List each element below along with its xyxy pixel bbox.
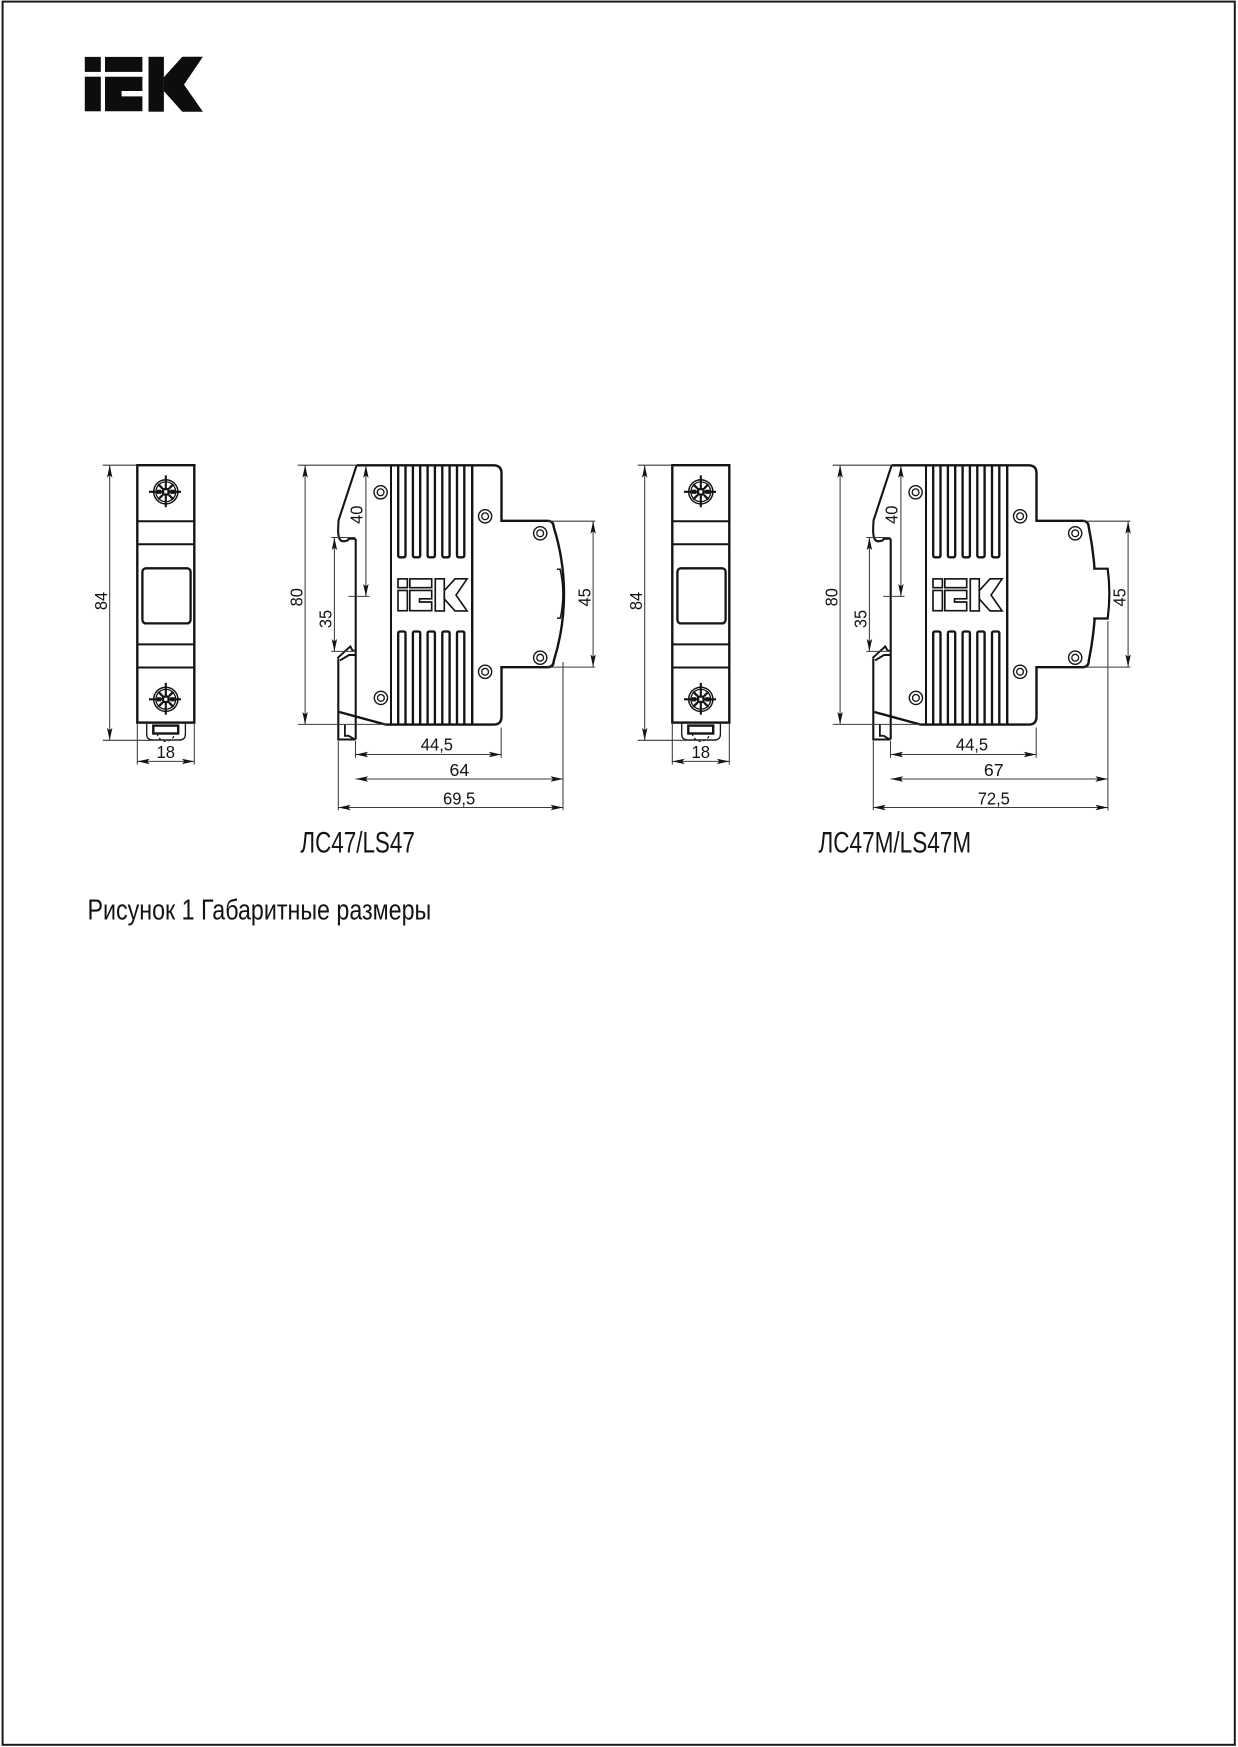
svg-text:64: 64 <box>450 760 470 780</box>
svg-text:35: 35 <box>316 610 336 628</box>
svg-text:ЛС47/LS47: ЛС47/LS47 <box>300 827 415 860</box>
svg-text:84: 84 <box>91 592 111 610</box>
svg-text:80: 80 <box>286 588 306 606</box>
svg-text:ЛС47М/LS47М: ЛС47М/LS47М <box>818 827 971 860</box>
svg-text:40: 40 <box>346 506 366 524</box>
svg-text:45: 45 <box>574 588 594 606</box>
svg-text:69,5: 69,5 <box>443 788 475 808</box>
svg-text:40: 40 <box>881 506 901 524</box>
svg-text:35: 35 <box>851 610 871 628</box>
svg-text:67: 67 <box>984 760 1004 780</box>
svg-text:84: 84 <box>626 592 646 610</box>
svg-text:44,5: 44,5 <box>421 735 453 755</box>
svg-text:Рисунок 1 Габаритные размеры: Рисунок 1 Габаритные размеры <box>88 894 432 926</box>
svg-text:45: 45 <box>1109 588 1129 606</box>
svg-text:80: 80 <box>821 588 841 606</box>
svg-text:72,5: 72,5 <box>978 788 1010 808</box>
svg-text:18: 18 <box>692 742 711 762</box>
svg-text:44,5: 44,5 <box>956 735 988 755</box>
svg-text:18: 18 <box>157 742 176 762</box>
